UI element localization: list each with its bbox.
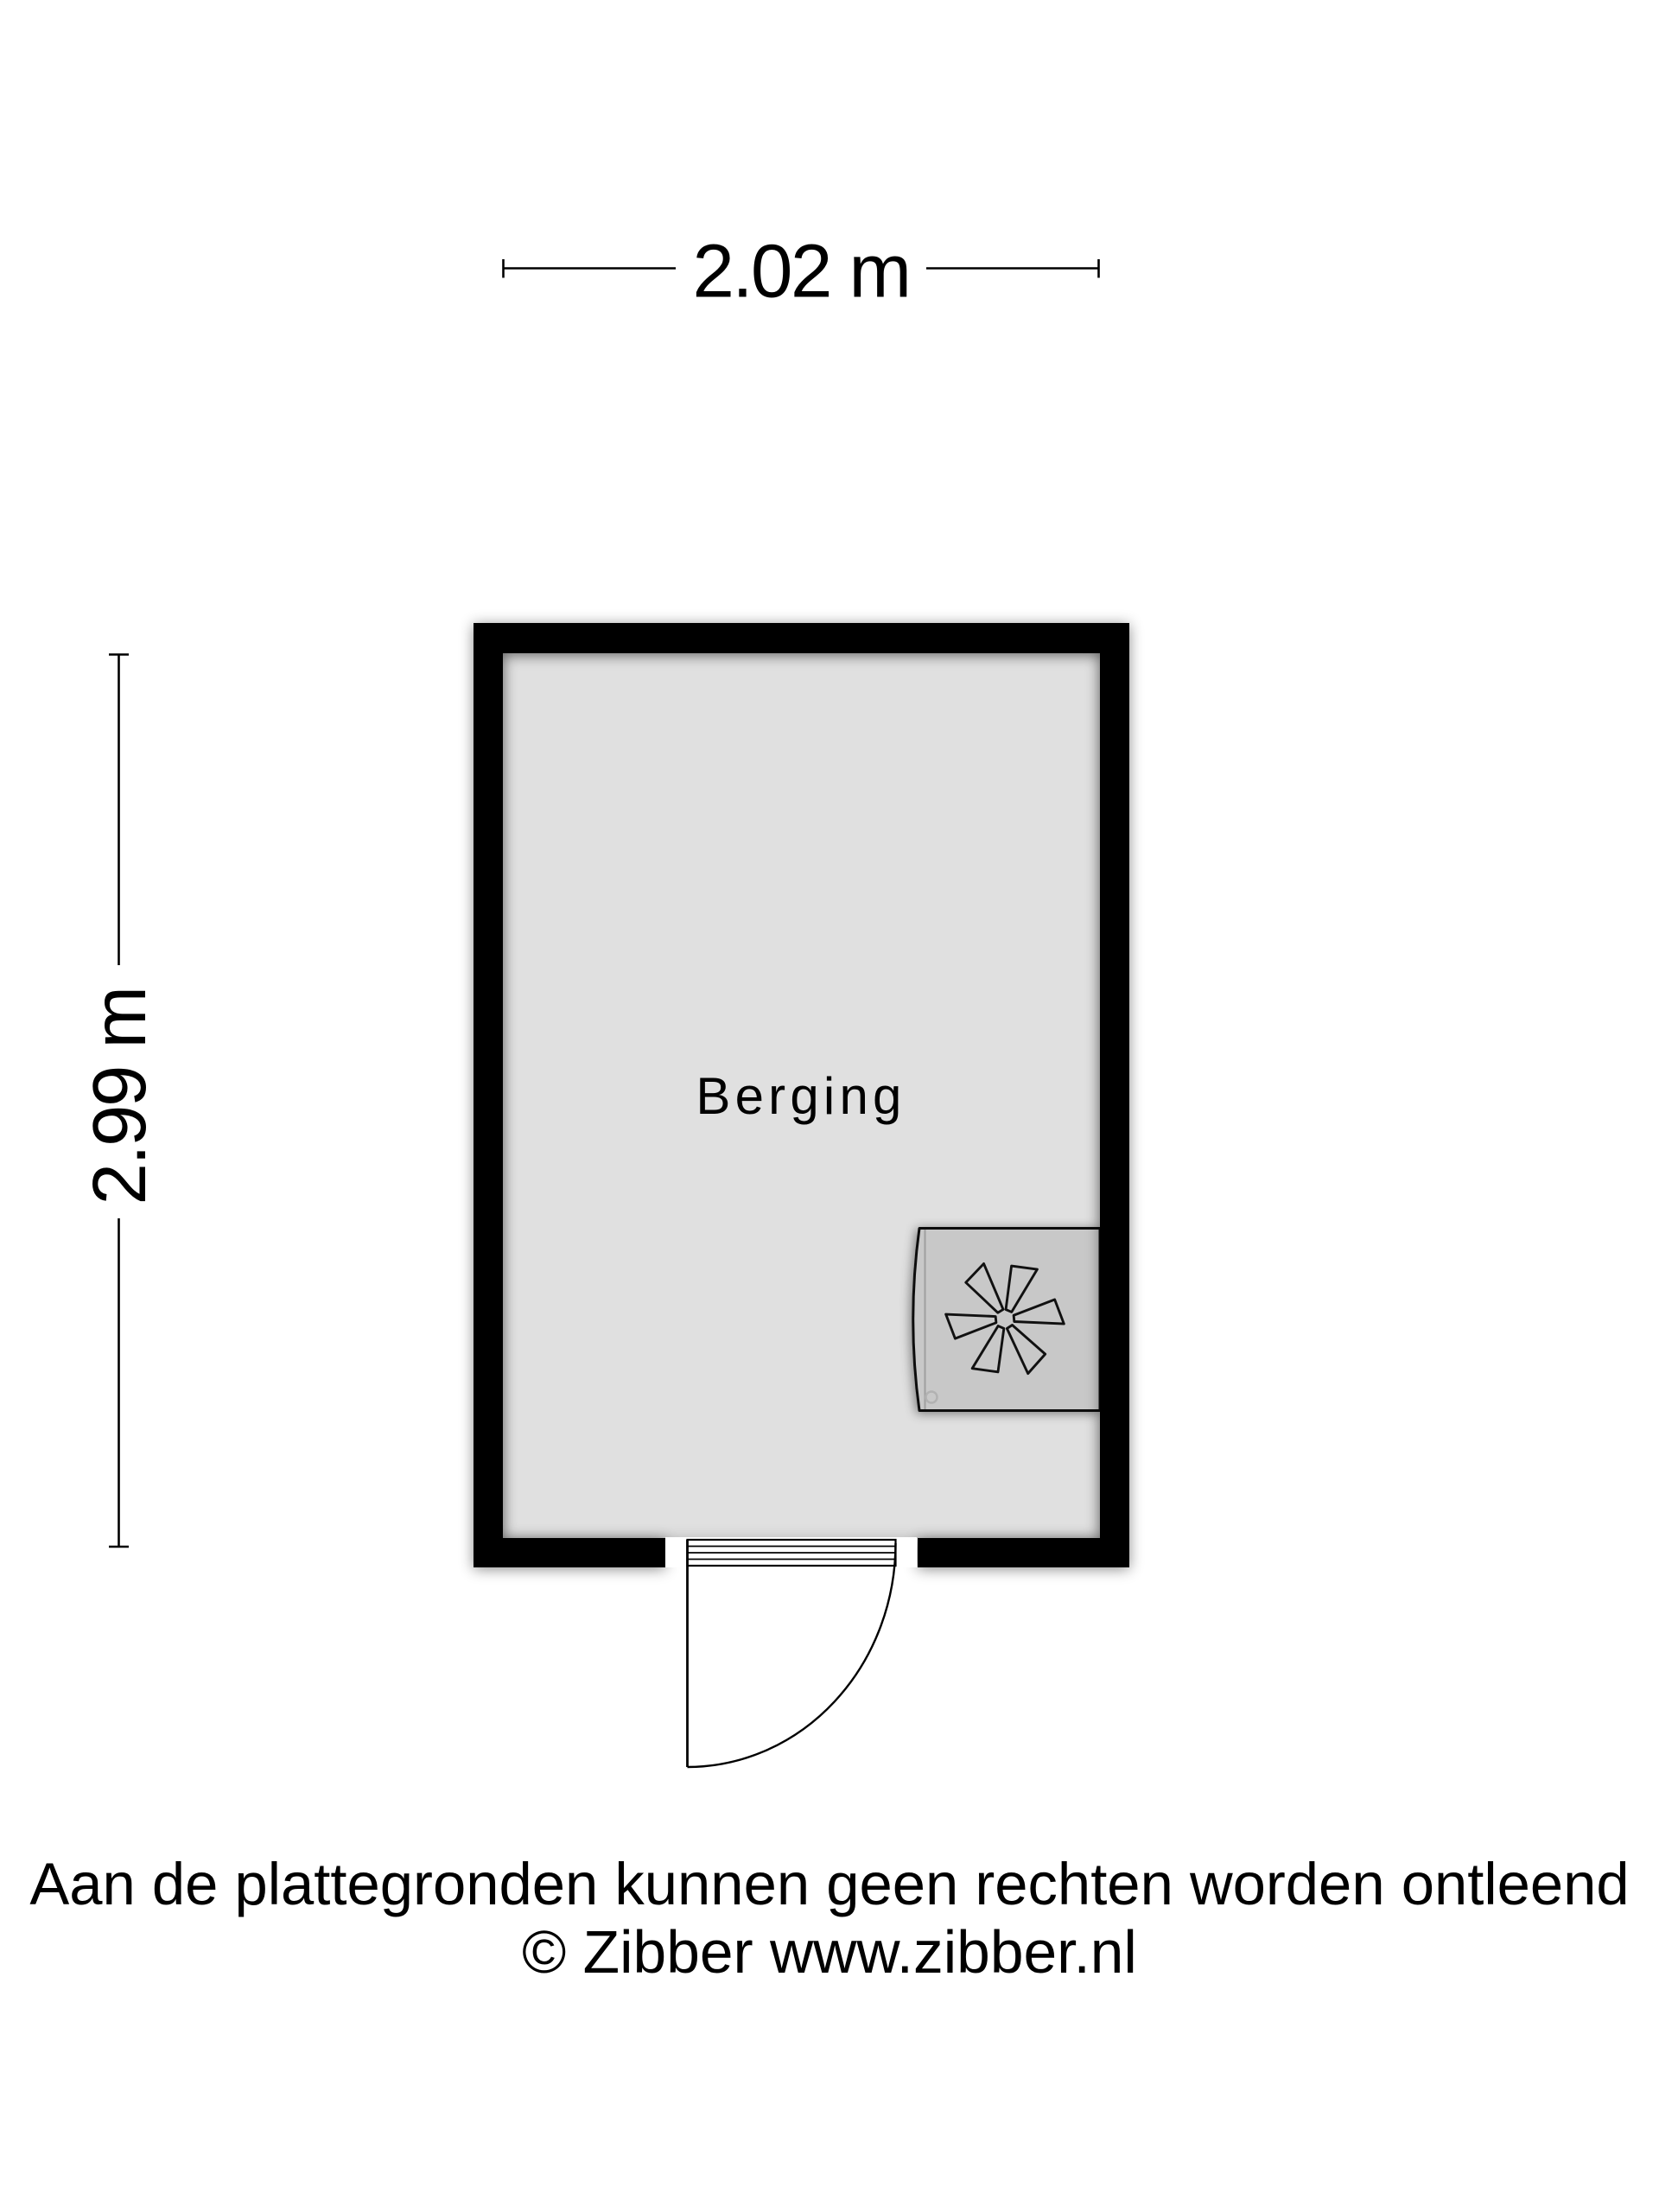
svg-text:2.02 m: 2.02 m: [693, 230, 910, 314]
svg-text:2.99 m: 2.99 m: [78, 988, 162, 1205]
svg-text:© Zibber www.zibber.nl: © Zibber www.zibber.nl: [522, 1918, 1137, 1986]
svg-text:Aan de plattegronden kunnen ge: Aan de plattegronden kunnen geen rechten…: [29, 1851, 1629, 1917]
svg-text:Berging: Berging: [696, 1067, 906, 1125]
